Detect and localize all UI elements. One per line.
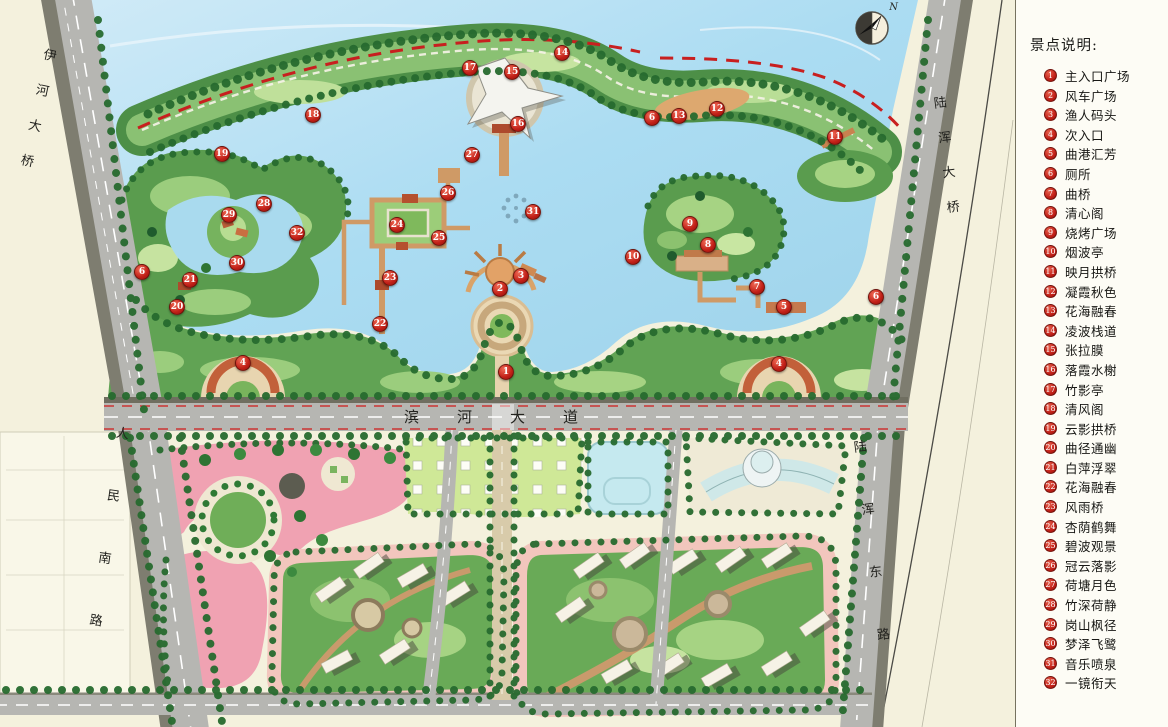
map-marker-23[interactable]: 23: [382, 270, 398, 286]
map-marker-2[interactable]: 2: [492, 281, 508, 297]
legend-item-label: 曲桥: [1065, 184, 1091, 203]
map-marker-3[interactable]: 3: [513, 268, 529, 284]
legend-item: 19云影拱桥: [1044, 422, 1162, 435]
legend-item-number: 6: [1044, 167, 1057, 180]
legend-item: 15张拉膜: [1044, 343, 1162, 356]
map-marker-17[interactable]: 17: [462, 60, 478, 76]
legend-item-label: 白萍浮翠: [1065, 458, 1117, 477]
legend-item-label: 云影拱桥: [1065, 419, 1117, 438]
legend-item-label: 竹深荷静: [1065, 595, 1117, 614]
legend-item: 28竹深荷静: [1044, 598, 1162, 611]
legend-item-number: 10: [1044, 245, 1057, 258]
legend-item-number: 20: [1044, 441, 1057, 454]
legend-item-number: 25: [1044, 539, 1057, 552]
map-marker-32[interactable]: 32: [289, 225, 305, 241]
legend-item-number: 21: [1044, 461, 1057, 474]
map-marker-30[interactable]: 30: [229, 255, 245, 271]
legend-item: 10烟波亭: [1044, 245, 1162, 258]
map-marker-19[interactable]: 19: [214, 146, 230, 162]
legend-item-label: 主入口广场: [1065, 66, 1130, 85]
map-marker-6[interactable]: 6: [644, 110, 660, 126]
legend-item-number: 4: [1044, 128, 1057, 141]
marker-layer: 1417151627613121118192829323026242531233…: [0, 0, 1015, 727]
map-marker-22[interactable]: 22: [372, 316, 388, 332]
legend-item-number: 26: [1044, 559, 1057, 572]
map-marker-24[interactable]: 24: [389, 217, 405, 233]
legend-item-label: 厕所: [1065, 164, 1091, 183]
legend-item-label: 音乐喷泉: [1065, 654, 1117, 673]
legend-item-label: 清心阁: [1065, 203, 1104, 222]
legend-item: 12凝霞秋色: [1044, 285, 1162, 298]
map-marker-31[interactable]: 31: [525, 204, 541, 220]
legend-item: 32一镜衔天: [1044, 676, 1162, 689]
legend-item-label: 次入口: [1065, 125, 1104, 144]
map-marker-6[interactable]: 6: [134, 264, 150, 280]
map-marker-27[interactable]: 27: [464, 147, 480, 163]
legend-item-label: 烟波亭: [1065, 242, 1104, 261]
legend-item: 24杏荫鹤舞: [1044, 520, 1162, 533]
legend-item-number: 9: [1044, 226, 1057, 239]
legend-item-number: 24: [1044, 520, 1057, 533]
legend-item: 23风雨桥: [1044, 500, 1162, 513]
legend-item-label: 荷塘月色: [1065, 575, 1117, 594]
legend-item-number: 12: [1044, 285, 1057, 298]
legend-item-label: 落霞水榭: [1065, 360, 1117, 379]
legend-item-label: 曲径通幽: [1065, 438, 1117, 457]
legend-item-number: 23: [1044, 500, 1057, 513]
legend-item: 5曲港汇芳: [1044, 147, 1162, 160]
legend-item-label: 杏荫鹤舞: [1065, 517, 1117, 536]
map-marker-16[interactable]: 16: [510, 116, 526, 132]
legend-item-label: 张拉膜: [1065, 340, 1104, 359]
legend-item: 16落霞水榭: [1044, 363, 1162, 376]
legend-item-label: 碧波观景: [1065, 536, 1117, 555]
map-marker-10[interactable]: 10: [625, 249, 641, 265]
map-marker-8[interactable]: 8: [700, 237, 716, 253]
legend-item-label: 花海融春: [1065, 301, 1117, 320]
legend-item-label: 风车广场: [1065, 86, 1117, 105]
legend-item: 7曲桥: [1044, 187, 1162, 200]
legend-item-number: 17: [1044, 383, 1057, 396]
legend-item-label: 岗山枫径: [1065, 615, 1117, 634]
legend-item-label: 花海融春: [1065, 477, 1117, 496]
legend-item-label: 映月拱桥: [1065, 262, 1117, 281]
legend-item: 30梦泽飞鹭: [1044, 637, 1162, 650]
legend-list: 1主入口广场2风车广场3渔人码头4次入口5曲港汇芳6厕所7曲桥8清心阁9烧烤广场…: [1030, 69, 1162, 689]
map-marker-6[interactable]: 6: [868, 289, 884, 305]
legend-item: 11映月拱桥: [1044, 265, 1162, 278]
legend-item-number: 18: [1044, 402, 1057, 415]
legend-item-label: 清风阁: [1065, 399, 1104, 418]
legend-item-label: 曲港汇芳: [1065, 144, 1117, 163]
legend-item-number: 7: [1044, 187, 1057, 200]
legend-item: 22花海融春: [1044, 480, 1162, 493]
map-marker-15[interactable]: 15: [504, 64, 520, 80]
legend-item-label: 烧烤广场: [1065, 223, 1117, 242]
legend-title: 景点说明:: [1030, 34, 1162, 55]
map-marker-28[interactable]: 28: [256, 196, 272, 212]
legend-item-number: 2: [1044, 89, 1057, 102]
legend-item-number: 16: [1044, 363, 1057, 376]
site-plan-map: 伊河大桥 陆浑大桥 人民南路 陆浑东路 滨河大道 N 1417151627613…: [0, 0, 1015, 727]
map-marker-13[interactable]: 13: [671, 108, 687, 124]
legend-item-number: 28: [1044, 598, 1057, 611]
legend-item-number: 13: [1044, 304, 1057, 317]
legend-panel: 景点说明: 1主入口广场2风车广场3渔人码头4次入口5曲港汇芳6厕所7曲桥8清心…: [1015, 0, 1168, 727]
legend-item: 29岗山枫径: [1044, 618, 1162, 631]
legend-item: 14凌波栈道: [1044, 324, 1162, 337]
legend-item: 1主入口广场: [1044, 69, 1162, 82]
legend-item-number: 32: [1044, 676, 1057, 689]
legend-item-number: 8: [1044, 206, 1057, 219]
map-marker-14[interactable]: 14: [554, 45, 570, 61]
map-marker-11[interactable]: 11: [827, 129, 843, 145]
map-marker-4[interactable]: 4: [235, 355, 251, 371]
legend-item-label: 风雨桥: [1065, 497, 1104, 516]
legend-item-number: 14: [1044, 324, 1057, 337]
legend-item-number: 22: [1044, 480, 1057, 493]
legend-item-number: 11: [1044, 265, 1057, 278]
legend-item: 9烧烤广场: [1044, 226, 1162, 239]
legend-item-number: 15: [1044, 343, 1057, 356]
legend-item: 13花海融春: [1044, 304, 1162, 317]
legend-item: 25碧波观景: [1044, 539, 1162, 552]
map-marker-9[interactable]: 9: [682, 216, 698, 232]
legend-item-label: 冠云落影: [1065, 556, 1117, 575]
map-marker-1[interactable]: 1: [498, 364, 514, 380]
map-marker-5[interactable]: 5: [776, 299, 792, 315]
legend-item: 4次入口: [1044, 128, 1162, 141]
map-marker-29[interactable]: 29: [221, 207, 237, 223]
legend-item: 6厕所: [1044, 167, 1162, 180]
legend-item: 21白萍浮翠: [1044, 461, 1162, 474]
legend-item-number: 31: [1044, 657, 1057, 670]
legend-item-number: 27: [1044, 578, 1057, 591]
legend-item-label: 凌波栈道: [1065, 321, 1117, 340]
legend-item: 18清风阁: [1044, 402, 1162, 415]
legend-item-label: 竹影亭: [1065, 380, 1104, 399]
legend-item-label: 一镜衔天: [1065, 673, 1117, 692]
legend-item-number: 3: [1044, 108, 1057, 121]
map-marker-25[interactable]: 25: [431, 230, 447, 246]
legend-item-number: 5: [1044, 147, 1057, 160]
master-plan-page: 伊河大桥 陆浑大桥 人民南路 陆浑东路 滨河大道 N 1417151627613…: [0, 0, 1168, 727]
legend-item-label: 凝霞秋色: [1065, 282, 1117, 301]
map-marker-26[interactable]: 26: [440, 185, 456, 201]
legend-item-number: 29: [1044, 618, 1057, 631]
map-marker-21[interactable]: 21: [182, 272, 198, 288]
map-marker-20[interactable]: 20: [169, 299, 185, 315]
legend-item: 31音乐喷泉: [1044, 657, 1162, 670]
map-marker-4[interactable]: 4: [771, 356, 787, 372]
legend-item: 8清心阁: [1044, 206, 1162, 219]
legend-item: 20曲径通幽: [1044, 441, 1162, 454]
legend-item: 3渔人码头: [1044, 108, 1162, 121]
legend-item-label: 渔人码头: [1065, 105, 1117, 124]
legend-item: 26冠云落影: [1044, 559, 1162, 572]
legend-item: 27荷塘月色: [1044, 578, 1162, 591]
legend-item: 2风车广场: [1044, 89, 1162, 102]
legend-item-number: 19: [1044, 422, 1057, 435]
legend-item: 17竹影亭: [1044, 383, 1162, 396]
map-marker-12[interactable]: 12: [709, 101, 725, 117]
map-marker-18[interactable]: 18: [305, 107, 321, 123]
legend-item-number: 1: [1044, 69, 1057, 82]
map-marker-7[interactable]: 7: [749, 279, 765, 295]
legend-item-label: 梦泽飞鹭: [1065, 634, 1117, 653]
legend-item-number: 30: [1044, 637, 1057, 650]
